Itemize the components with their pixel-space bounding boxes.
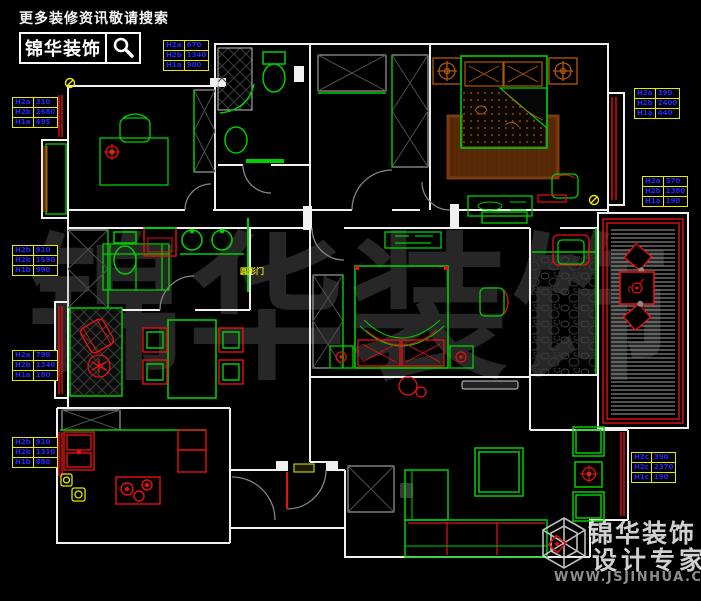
arc-door-label: 圆形门 xyxy=(240,266,264,277)
toilet xyxy=(114,232,136,274)
cube-logo-icon xyxy=(540,516,588,574)
corridor-cabinet xyxy=(482,212,527,223)
header-tagline: 更多装修资讯敬请搜索 xyxy=(19,10,219,28)
dining-table xyxy=(168,320,216,398)
dimension-table: H2a390H2b2400H1a440 xyxy=(634,88,680,119)
double-basin xyxy=(182,229,232,250)
dining-chairs xyxy=(143,328,243,384)
brand-name: 锦华装饰 xyxy=(21,34,105,62)
bathroom-1 xyxy=(218,48,285,161)
dining-set xyxy=(143,320,243,398)
entry-threshold xyxy=(294,464,314,472)
bathroom-2 xyxy=(68,218,248,308)
cad-floorplan-screenshot: 锦华装饰 xyxy=(0,0,701,601)
dimension-table: H2b910H2b1310H1b880 xyxy=(12,437,58,468)
kitchen-sink xyxy=(64,432,94,470)
washer xyxy=(144,228,176,256)
magnifier-icon xyxy=(107,34,139,62)
wall-device xyxy=(400,483,413,498)
small-fixtures xyxy=(61,474,85,501)
master-bedroom xyxy=(433,56,578,216)
balcony-table xyxy=(620,272,654,304)
bay-window-seat xyxy=(46,144,66,214)
desk xyxy=(100,138,168,185)
fridge xyxy=(178,430,206,472)
bed-2 xyxy=(355,266,448,368)
basin xyxy=(225,127,247,153)
dimension-table: H2a670H2b1340H1a900 xyxy=(163,40,209,71)
dimension-table: H2a570H2b2380H1a190 xyxy=(642,176,688,207)
l-sofa xyxy=(405,470,547,557)
bedroom-2 xyxy=(313,212,527,397)
vanity-stool xyxy=(399,377,426,397)
pebble-floor xyxy=(532,254,596,374)
desk-shelf xyxy=(385,232,441,248)
bedroom-chair xyxy=(552,174,578,198)
footer-url: WWW.JSJINHUA.COM xyxy=(554,570,701,585)
dimension-table: H2b910H2b1590H1b990 xyxy=(12,245,58,276)
double-bed xyxy=(461,56,547,148)
study-sofa xyxy=(103,244,169,290)
walkin-closet xyxy=(318,55,428,167)
dresser xyxy=(468,196,532,216)
target-symbol xyxy=(580,465,598,483)
balcony xyxy=(611,227,675,417)
dimension-table: H2c390H2c2370H1c190 xyxy=(631,452,676,483)
coffee-table xyxy=(475,448,523,496)
kitchen xyxy=(60,410,206,504)
toilet xyxy=(263,52,285,92)
stove xyxy=(116,477,160,504)
nightstand-right xyxy=(549,58,577,84)
footer-logo: 锦华装饰 设计专家 WWW.JSJINHUA.COM xyxy=(538,512,701,592)
dimension-table: H2a790H2b1340H1a180 xyxy=(12,350,58,381)
floorplan-canvas xyxy=(0,0,701,601)
brand-logo: 锦华装饰 xyxy=(19,32,141,64)
patio xyxy=(532,228,596,374)
target-symbol xyxy=(104,144,120,160)
tv-unit xyxy=(462,381,518,389)
lounge-corner xyxy=(70,308,122,396)
study-wardrobe xyxy=(194,90,215,172)
reading-chair xyxy=(480,288,508,316)
study-room xyxy=(46,90,215,290)
dimension-table: H2a310H2b2680H1a495 xyxy=(12,97,58,128)
nightstand-left xyxy=(433,58,461,84)
